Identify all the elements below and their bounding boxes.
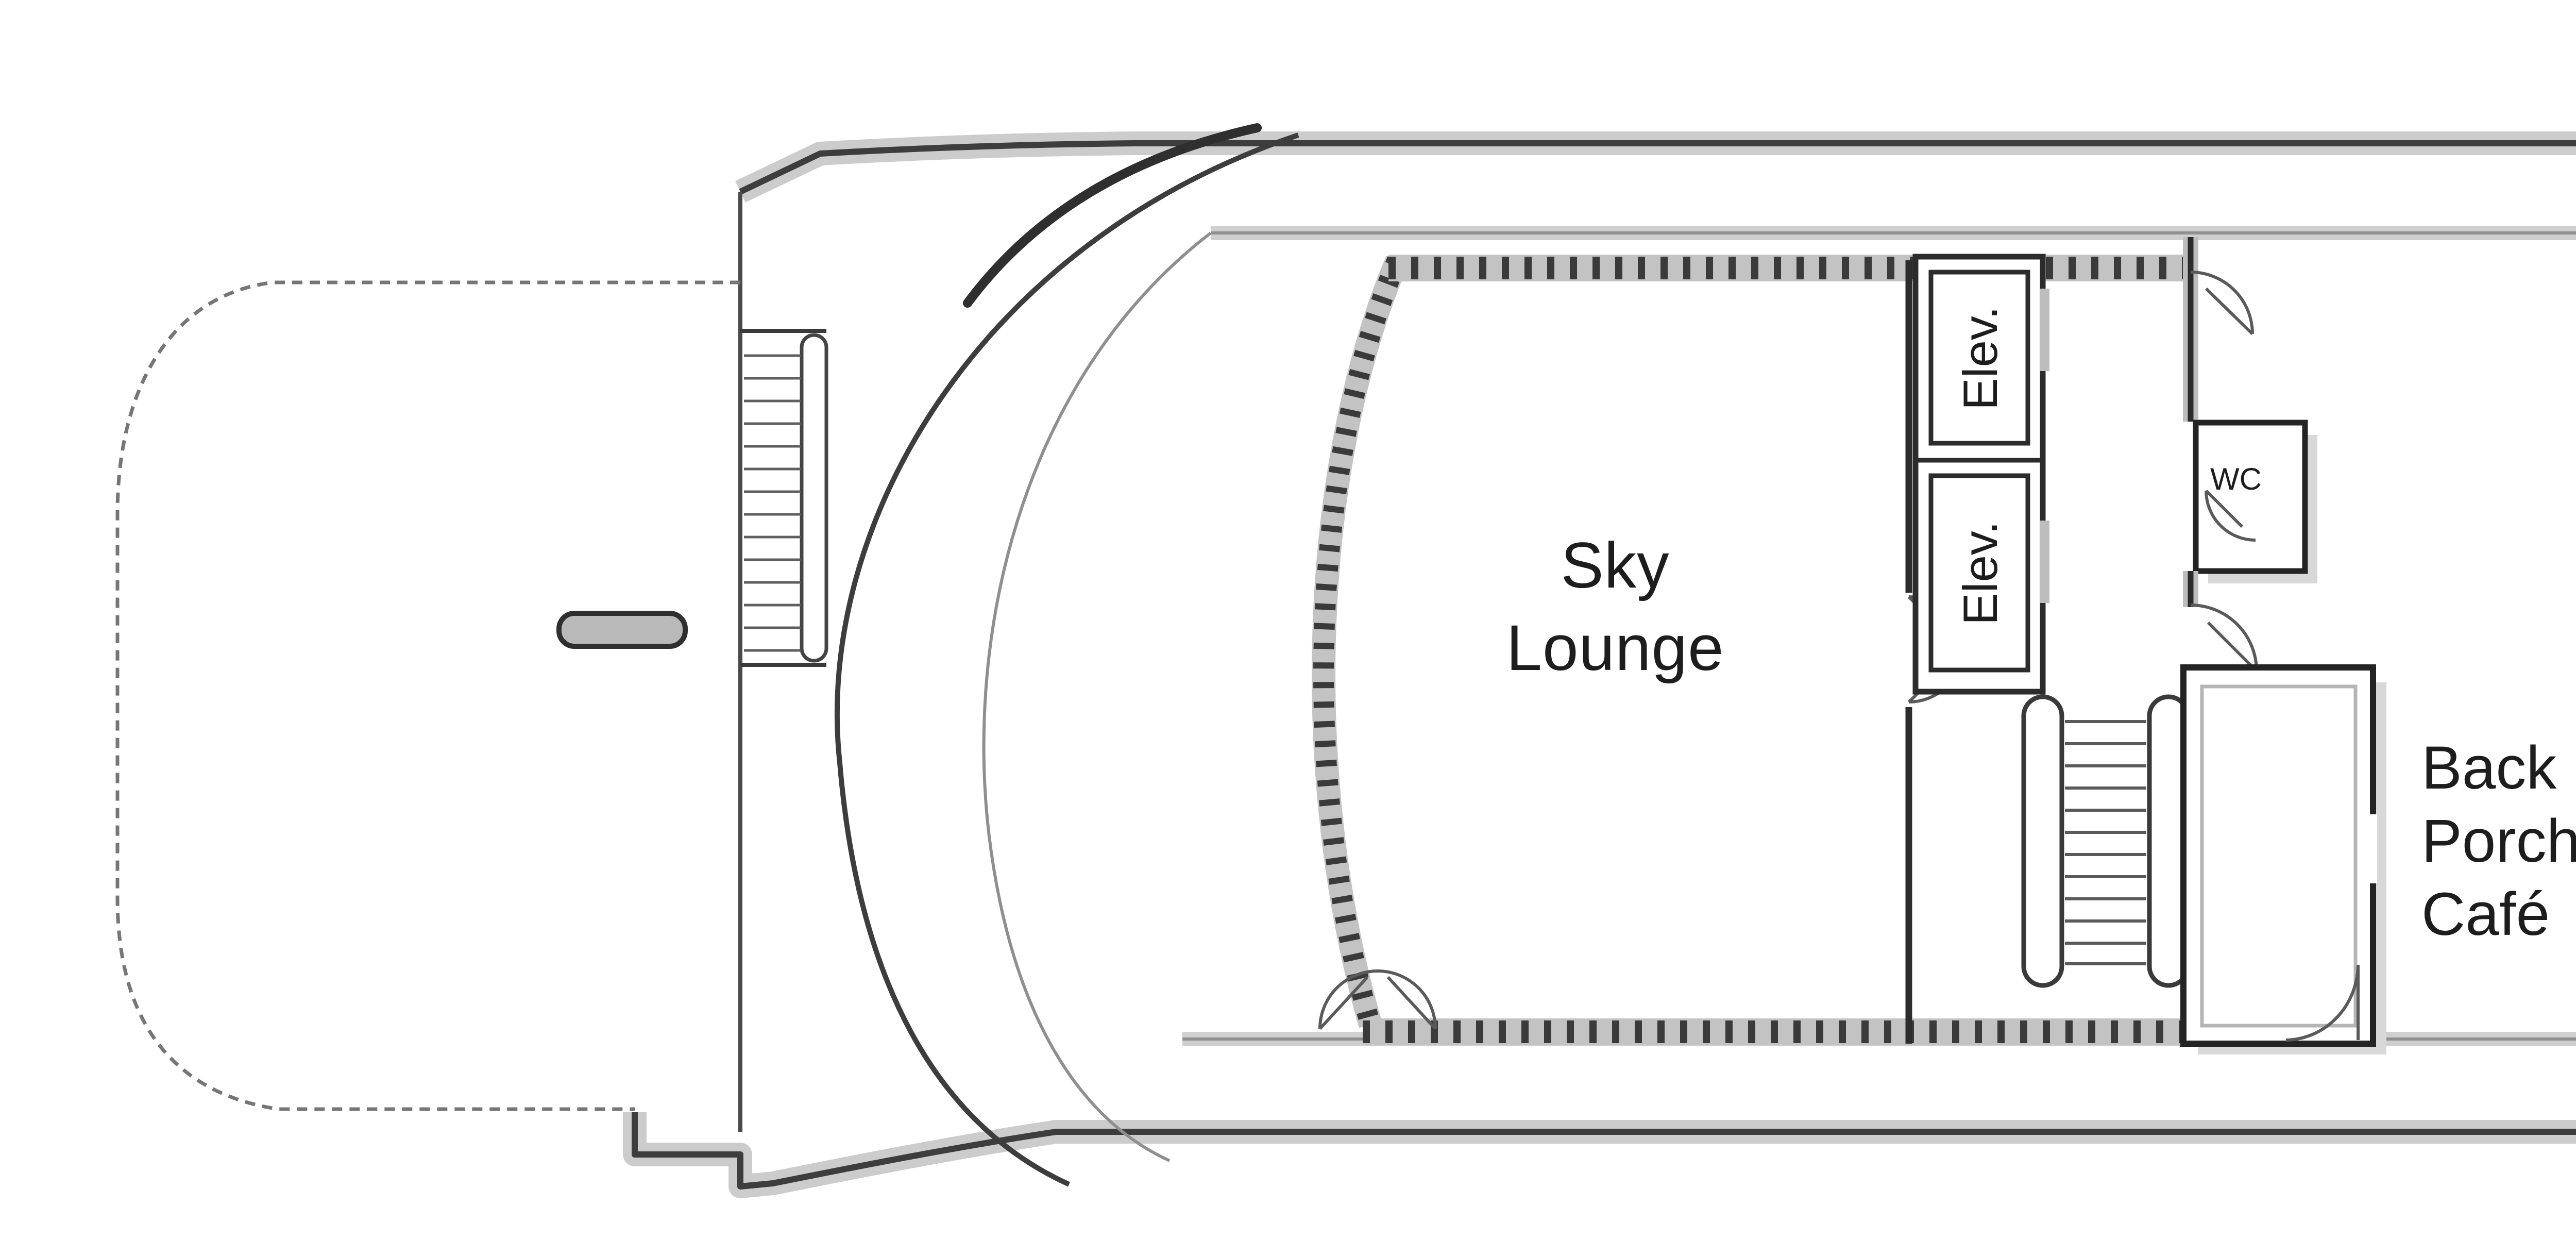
cafe-label-line1: Back	[2421, 734, 2557, 802]
back-porch-cafe: Back Porch Café	[2183, 667, 2576, 1054]
bow-bulwark-outer	[837, 135, 1298, 1184]
cafe-label-line3: Café	[2421, 880, 2550, 948]
bow-platform	[117, 282, 740, 1109]
sky-lounge-label-line2: Lounge	[1506, 612, 1724, 684]
ship-deck-plan: Sky Lounge Elev. Elev. WC	[0, 0, 2576, 1239]
wc-area: WC	[2191, 237, 2317, 671]
elevator-door-icon	[2040, 289, 2049, 371]
sky-lounge-label-line1: Sky	[1561, 530, 1669, 601]
bow-bench	[559, 613, 685, 646]
cafe-label-line2: Porch	[2421, 807, 2576, 875]
bow-stairs-icon	[740, 331, 826, 665]
cafe-structure	[2183, 667, 2373, 1044]
central-stairs-icon	[2024, 697, 2188, 985]
bow-bulwark-inner	[984, 233, 1211, 1161]
wc-label: WC	[2210, 462, 2262, 496]
corridor-door-arc-icon	[2191, 605, 2257, 671]
cafe-door-opening	[2366, 814, 2377, 883]
elevator-aft-label: Elev.	[1953, 521, 2007, 625]
elevator-door-icon	[2040, 521, 2049, 603]
corridor-door-arc-icon	[2191, 272, 2252, 334]
elevator-lobby: Elev. Elev.	[1916, 257, 2049, 692]
elevator-forward-label: Elev.	[1953, 306, 2007, 410]
